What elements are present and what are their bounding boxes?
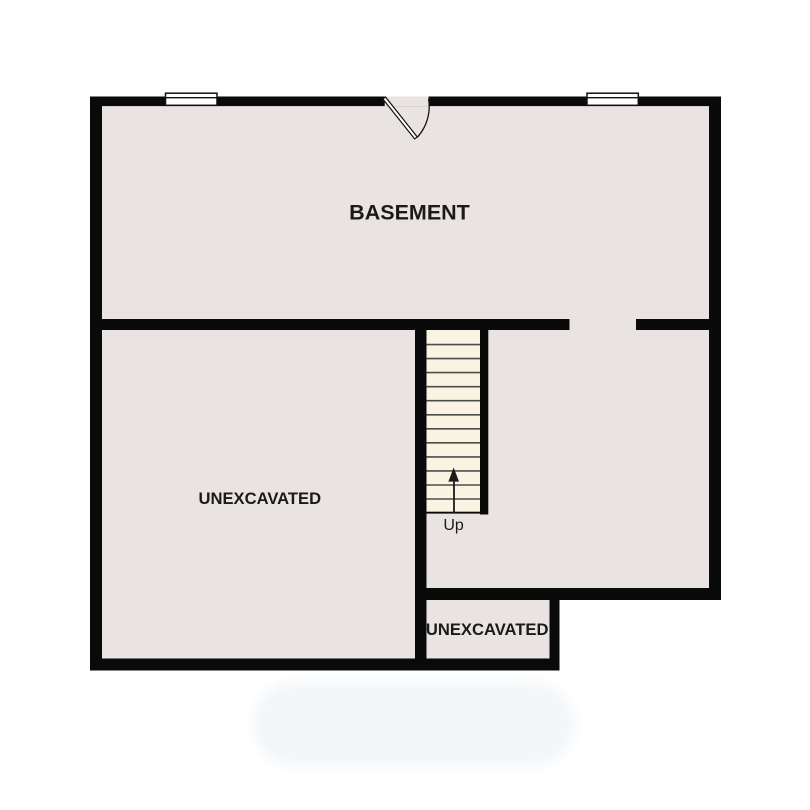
svg-text:BASEMENT: BASEMENT (349, 201, 470, 225)
svg-text:UNEXCAVATED: UNEXCAVATED (198, 489, 321, 508)
svg-text:UNEXCAVATED: UNEXCAVATED (426, 620, 549, 639)
svg-text:Up: Up (443, 517, 464, 534)
